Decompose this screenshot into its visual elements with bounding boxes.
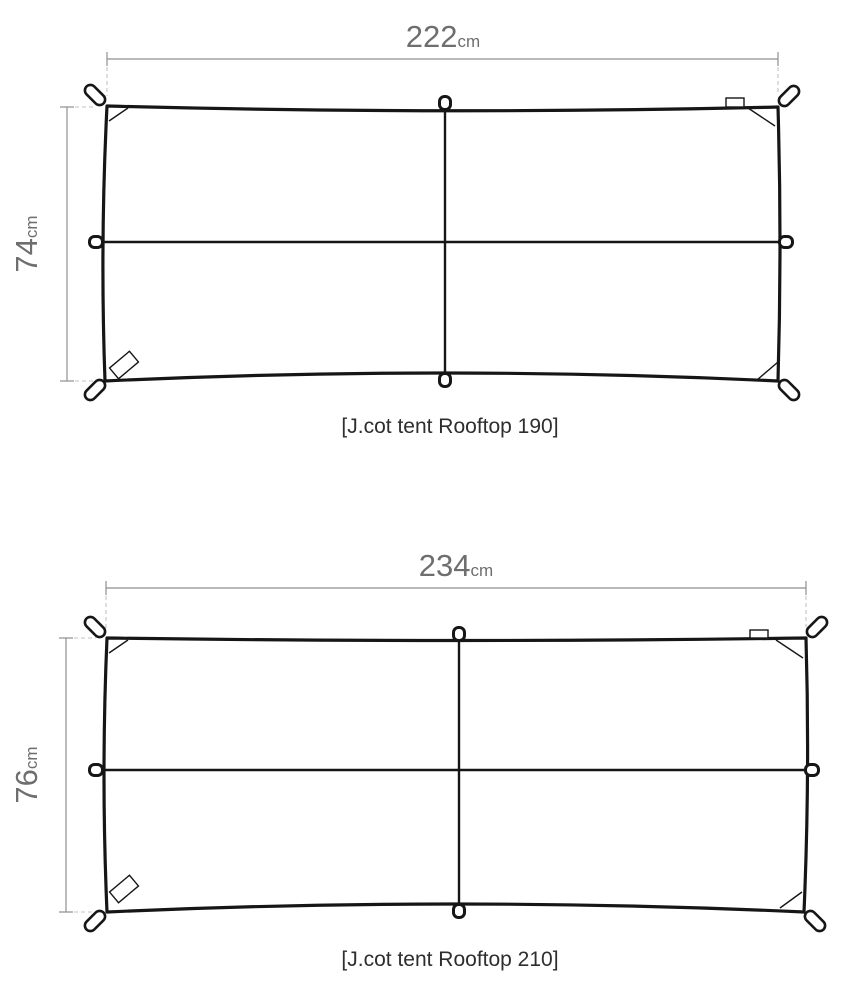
width-dimension-label: 234cm — [419, 548, 493, 583]
bottom-center-loop-icon — [454, 905, 465, 918]
brand-patch-icon — [110, 875, 139, 902]
brand-patch-icon — [110, 351, 139, 378]
corner-stitch-top-right — [776, 640, 803, 658]
corner-stitch-top-right — [748, 108, 775, 126]
right-side-loop-icon — [780, 237, 793, 248]
top-center-loop-icon — [454, 628, 465, 641]
tarp-outline — [104, 638, 808, 912]
corner-stitch-top-left — [109, 640, 128, 653]
left-side-loop-icon — [90, 765, 103, 776]
height-dimension-label: 76cm — [9, 746, 44, 803]
diagram-caption: [J.cot tent Rooftop 210] — [341, 948, 558, 971]
corner-loop-top-left-icon — [83, 615, 108, 640]
height-dimension: 76cm — [9, 638, 96, 912]
tent-diagram-rooftop-210: 234cm 76cm — [0, 530, 848, 994]
label-tag-icon — [726, 98, 744, 107]
height-dimension: 74cm — [9, 107, 96, 381]
corner-loop-top-right-icon — [805, 615, 830, 640]
tent-diagram-rooftop-190: 222cm 74cm — [0, 0, 848, 470]
bottom-center-loop-icon — [440, 374, 451, 387]
tarp-panel — [83, 615, 830, 934]
width-dimension: 222cm — [107, 19, 778, 96]
corner-stitch-bottom-right — [780, 892, 802, 908]
tarp-outline — [103, 106, 780, 381]
corner-loop-top-left-icon — [83, 83, 108, 108]
tarp-panel — [83, 83, 802, 403]
corner-loop-bottom-left-icon — [83, 378, 108, 403]
width-dimension-label: 222cm — [406, 19, 480, 54]
width-dimension: 234cm — [106, 548, 806, 628]
corner-loop-bottom-left-icon — [83, 909, 108, 934]
label-tag-icon — [750, 630, 768, 638]
corner-loop-bottom-right-icon — [777, 378, 802, 403]
corner-loop-top-right-icon — [777, 84, 802, 109]
height-dimension-label: 74cm — [9, 215, 44, 272]
corner-loop-bottom-right-icon — [803, 909, 828, 934]
page: 222cm 74cm — [0, 0, 848, 994]
left-side-loop-icon — [90, 237, 103, 248]
corner-stitch-bottom-right — [757, 362, 778, 380]
right-side-loop-icon — [806, 765, 819, 776]
diagram-caption: [J.cot tent Rooftop 190] — [341, 415, 558, 438]
corner-stitch-top-left — [109, 108, 128, 121]
top-center-loop-icon — [440, 97, 451, 110]
